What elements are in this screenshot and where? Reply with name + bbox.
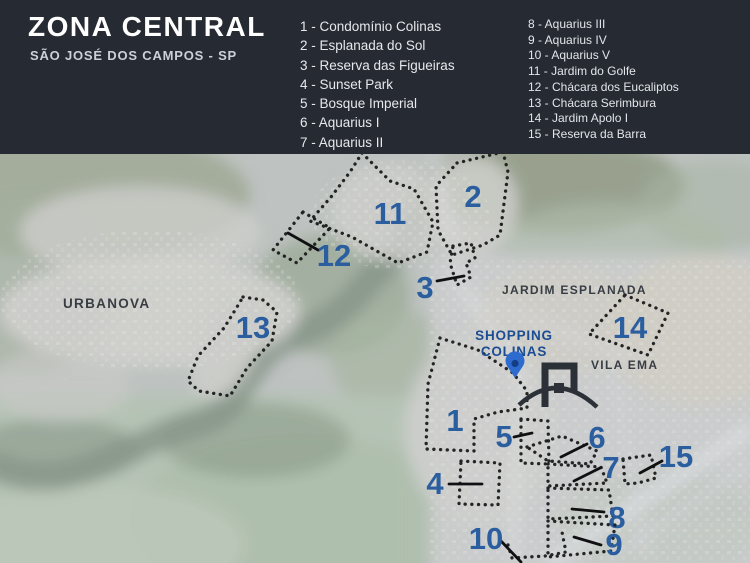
page-subtitle: SÃO JOSÉ DOS CAMPOS - SP bbox=[30, 48, 266, 63]
region-number-1: 1 bbox=[446, 403, 463, 438]
legend-item-11: 11 - Jardim do Golfe bbox=[528, 64, 679, 80]
region-number-2: 2 bbox=[464, 179, 481, 214]
legend-item-4: 4 - Sunset Park bbox=[300, 75, 455, 94]
infographic-map-page: ZONA CENTRAL SÃO JOSÉ DOS CAMPOS - SP 1 … bbox=[0, 0, 750, 563]
region-number-14: 14 bbox=[613, 310, 648, 345]
title-block: ZONA CENTRAL SÃO JOSÉ DOS CAMPOS - SP bbox=[28, 12, 266, 63]
shopping-colinas-label-line1: SHOPPING bbox=[475, 328, 553, 343]
area-label-vila-ema: VILA EMA bbox=[591, 358, 658, 372]
legend-item-10: 10 - Aquarius V bbox=[528, 48, 679, 64]
legend-item-5: 5 - Bosque Imperial bbox=[300, 94, 455, 113]
area-label-jardim-esplanada: JARDIM ESPLANADA bbox=[502, 283, 647, 297]
header-bar: ZONA CENTRAL SÃO JOSÉ DOS CAMPOS - SP 1 … bbox=[0, 0, 750, 154]
region-number-11: 11 bbox=[374, 196, 407, 231]
region-number-3: 3 bbox=[416, 270, 433, 305]
region-number-10: 10 bbox=[469, 521, 503, 556]
satellite-map: 11 2 3 12 13 14 1 bbox=[0, 154, 750, 563]
legend-item-13: 13 - Chácara Serimbura bbox=[528, 96, 679, 112]
page-title: ZONA CENTRAL bbox=[28, 12, 266, 43]
region-number-5: 5 bbox=[495, 419, 512, 454]
legend-item-14: 14 - Jardim Apolo I bbox=[528, 111, 679, 127]
region-number-9: 9 bbox=[605, 527, 622, 562]
legend-item-3: 3 - Reserva das Figueiras bbox=[300, 56, 455, 75]
region-number-7: 7 bbox=[602, 450, 619, 485]
legend-item-8: 8 - Aquarius III bbox=[528, 17, 679, 33]
legend-item-15: 15 - Reserva da Barra bbox=[528, 127, 679, 143]
region-number-15: 15 bbox=[659, 439, 693, 474]
legend-column-1: 1 - Condomínio Colinas 2 - Esplanada do … bbox=[300, 17, 455, 152]
legend-item-1: 1 - Condomínio Colinas bbox=[300, 17, 455, 36]
legend-column-2: 8 - Aquarius III 9 - Aquarius IV 10 - Aq… bbox=[528, 17, 679, 143]
region-number-13: 13 bbox=[236, 310, 270, 345]
legend-item-9: 9 - Aquarius IV bbox=[528, 33, 679, 49]
legend-item-12: 12 - Chácara dos Eucaliptos bbox=[528, 80, 679, 96]
legend-item-7: 7 - Aquarius II bbox=[300, 133, 455, 152]
region-number-4: 4 bbox=[426, 466, 444, 501]
legend-item-6: 6 - Aquarius I bbox=[300, 113, 455, 132]
legend-item-2: 2 - Esplanada do Sol bbox=[300, 36, 455, 55]
region-number-12: 12 bbox=[317, 238, 351, 273]
area-label-urbanova: URBANOVA bbox=[63, 296, 150, 311]
